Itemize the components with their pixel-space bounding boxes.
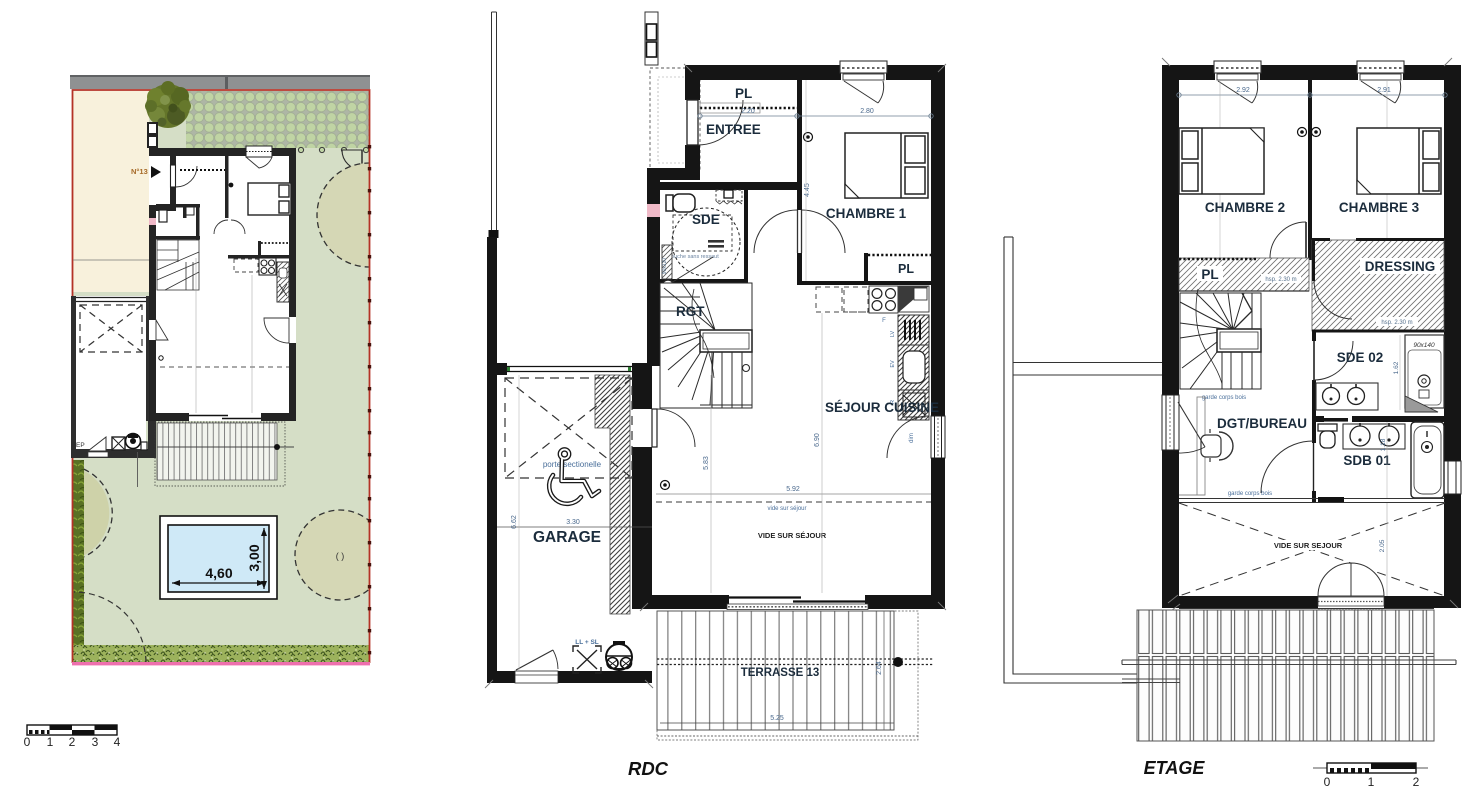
- svg-text:1: 1: [1368, 775, 1375, 789]
- svg-text:6.62: 6.62: [511, 515, 518, 529]
- svg-text:hsp. 2.30 m: hsp. 2.30 m: [1381, 320, 1412, 326]
- svg-text:F: F: [882, 318, 886, 324]
- svg-text:0: 0: [1324, 775, 1331, 789]
- svg-text:CHAMBRE 1: CHAMBRE 1: [826, 206, 907, 221]
- svg-text:PL: PL: [898, 262, 914, 276]
- svg-text:90x140: 90x140: [1413, 342, 1435, 349]
- svg-text:2: 2: [1413, 775, 1420, 789]
- svg-text:dim: dim: [909, 433, 915, 443]
- svg-text:EV: EV: [890, 360, 896, 368]
- svg-text:CHAMBRE 3: CHAMBRE 3: [1339, 200, 1420, 215]
- svg-text:4.45: 4.45: [804, 183, 811, 197]
- svg-text:VIDE SUR SEJOUR: VIDE SUR SEJOUR: [1274, 541, 1343, 550]
- svg-text:2.92: 2.92: [1236, 87, 1250, 94]
- svg-text:vide sur séjour: vide sur séjour: [767, 506, 806, 512]
- svg-text:PL: PL: [1201, 267, 1218, 282]
- svg-text:LV: LV: [890, 331, 896, 338]
- svg-text:SDB 01: SDB 01: [1343, 453, 1391, 468]
- svg-text:SDE 02: SDE 02: [1337, 350, 1384, 365]
- svg-text:90x120: 90x120: [662, 258, 668, 275]
- svg-text:TERRASSE 13: TERRASSE 13: [741, 667, 820, 679]
- svg-text:2.05: 2.05: [1379, 539, 1386, 552]
- svg-text:garde corps bois: garde corps bois: [1202, 395, 1246, 401]
- svg-text:garde corps bois: garde corps bois: [1228, 491, 1272, 497]
- svg-text:CHAMBRE 2: CHAMBRE 2: [1205, 200, 1285, 215]
- svg-text:GARAGE: GARAGE: [533, 529, 601, 546]
- svg-text:hsp. 2.30 m: hsp. 2.30 m: [1265, 277, 1296, 283]
- svg-text:douche sans ressaut: douche sans ressaut: [668, 254, 719, 260]
- svg-text:4,60: 4,60: [205, 565, 232, 581]
- svg-text:SDE: SDE: [692, 212, 720, 227]
- svg-text:4: 4: [114, 735, 121, 749]
- svg-text:2.20: 2.20: [741, 108, 755, 115]
- svg-text:5.92: 5.92: [786, 486, 800, 493]
- svg-text:LL + SL: LL + SL: [575, 639, 599, 646]
- svg-text:2.64: 2.64: [876, 661, 883, 675]
- svg-text:2.91: 2.91: [1377, 87, 1391, 94]
- svg-text:3: 3: [92, 735, 99, 749]
- svg-text:1: 1: [47, 735, 54, 749]
- svg-text:5.83: 5.83: [703, 456, 710, 470]
- svg-text:DRESSING: DRESSING: [1365, 259, 1436, 274]
- svg-text:2: 2: [69, 735, 76, 749]
- svg-text:ETAGE: ETAGE: [1144, 758, 1206, 778]
- svg-text:1.62: 1.62: [1393, 361, 1400, 374]
- svg-text:5.25: 5.25: [770, 715, 784, 722]
- svg-text:EP: EP: [76, 442, 85, 449]
- svg-text:porte sectionelle: porte sectionelle: [543, 460, 602, 469]
- svg-text:RGT: RGT: [676, 304, 705, 319]
- svg-text:2.80: 2.80: [860, 108, 874, 115]
- svg-text:VIDE SUR SÉJOUR: VIDE SUR SÉJOUR: [758, 531, 827, 540]
- svg-text:DGT/BUREAU: DGT/BUREAU: [1217, 416, 1307, 431]
- svg-text:PL: PL: [735, 86, 752, 101]
- svg-text:N°13: N°13: [131, 167, 148, 176]
- svg-text:SÉJOUR CUISINE: SÉJOUR CUISINE: [825, 400, 939, 415]
- svg-text:0: 0: [24, 735, 31, 749]
- svg-text:RDC: RDC: [628, 758, 669, 779]
- svg-text:( ): ( ): [336, 551, 345, 561]
- svg-text:3.30: 3.30: [566, 519, 580, 526]
- svg-text:ENTREE: ENTREE: [706, 122, 761, 137]
- svg-text:6.90: 6.90: [814, 433, 821, 447]
- svg-text:3,00: 3,00: [246, 544, 262, 571]
- svg-text:1.18: 1.18: [1380, 438, 1387, 451]
